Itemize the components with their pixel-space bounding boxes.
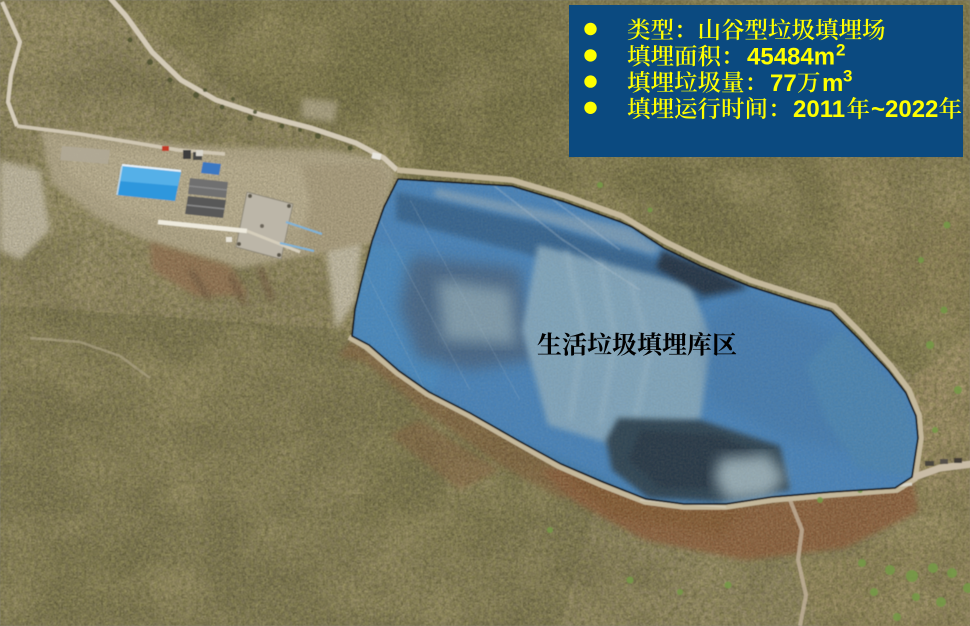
svg-text:77: 77 — [770, 70, 797, 97]
svg-text:2: 2 — [836, 41, 845, 60]
svg-text:~: ~ — [871, 96, 885, 123]
svg-text:45484m: 45484m — [747, 44, 835, 71]
svg-text:2011: 2011 — [793, 96, 845, 123]
svg-text:2022: 2022 — [885, 96, 938, 123]
svg-text:m: m — [822, 70, 843, 97]
svg-text:3: 3 — [843, 67, 852, 86]
